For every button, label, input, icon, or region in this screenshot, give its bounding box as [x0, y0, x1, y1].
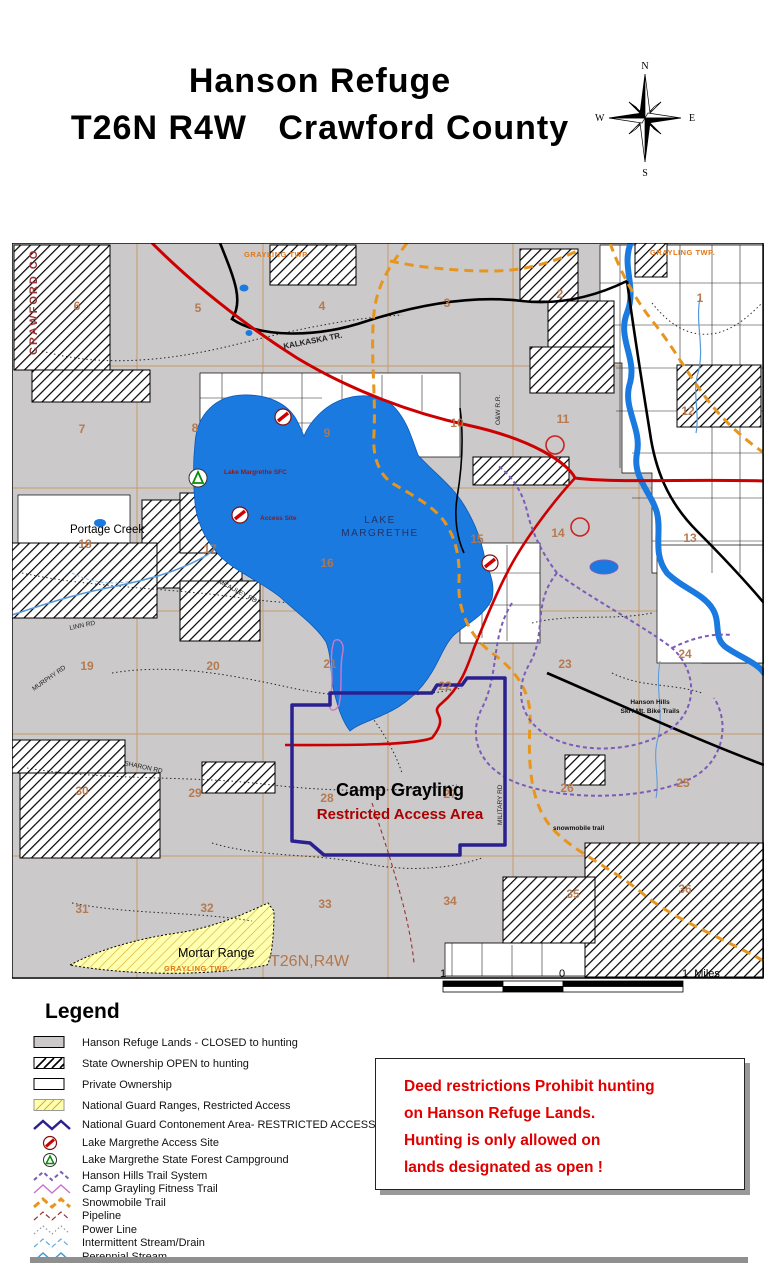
section-number: 12 — [681, 404, 695, 418]
legend-swatch-cell — [33, 1169, 73, 1183]
legend-item-label: Lake Margrethe State Forest Campground — [82, 1154, 289, 1166]
notice-line: lands designated as open ! — [376, 1154, 744, 1181]
section-number: 10 — [450, 416, 464, 430]
scale-label-left: 1 — [440, 968, 446, 980]
legend-swatch-cell — [33, 1135, 73, 1151]
section-number: 24 — [678, 647, 692, 661]
legend-line-sample — [33, 1196, 71, 1210]
legend-item-label: Private Ownership — [82, 1079, 172, 1091]
legend-item-label: National Guard Contonement Area- RESTRIC… — [82, 1119, 375, 1131]
legend-item: Pipeline — [33, 1210, 383, 1224]
legend-line-sample — [33, 1169, 71, 1183]
map-canvas: 6543217891011121817161514131920212223243… — [12, 243, 764, 979]
legend-line-sample — [33, 1182, 71, 1196]
lake-name-line1: LAKE — [364, 515, 396, 526]
legend-swatch-cell — [33, 1035, 73, 1050]
legend-swatch-yellow — [33, 1098, 67, 1113]
legend-swatch-cell — [33, 1152, 73, 1168]
section-number: 22 — [438, 679, 452, 693]
township-range-label: T26N,R4W — [270, 953, 350, 970]
legend-swatch-cell — [33, 1077, 73, 1092]
section-number: 14 — [551, 526, 565, 540]
legend-item-label: State Ownership OPEN to hunting — [82, 1058, 249, 1070]
legend-item: National Guard Ranges, Restricted Access — [33, 1095, 383, 1116]
legend-item: Power Line — [33, 1223, 383, 1237]
section-number: 31 — [75, 902, 89, 916]
legend-swatch-cell — [33, 1118, 73, 1132]
legend-panel: Legend Hanson Refuge Lands - CLOSED to h… — [33, 1000, 383, 1264]
legend-item: Hanson Hills Trail System — [33, 1169, 383, 1183]
legend-item-label: Lake Margrethe Access Site — [82, 1137, 219, 1149]
section-number: 30 — [75, 784, 89, 798]
section-number: 34 — [443, 894, 457, 908]
section-number: 2 — [557, 287, 564, 301]
scale-label-right: 1 Miles — [682, 968, 720, 980]
legend-item-label: National Guard Ranges, Restricted Access — [82, 1100, 291, 1112]
compass-n-label: N — [641, 61, 648, 72]
legend-items: Hanson Refuge Lands - CLOSED to huntingS… — [33, 1032, 383, 1264]
legend-item: State Ownership OPEN to hunting — [33, 1053, 383, 1074]
section-number: 13 — [683, 531, 697, 545]
portage-creek-label: Portage Creek — [70, 524, 144, 536]
section-number: 36 — [678, 882, 692, 896]
notice-line: Deed restrictions Prohibit hunting — [376, 1073, 744, 1100]
hanson-hills-label-1: Hanson Hills — [630, 699, 670, 706]
section-number: 4 — [319, 299, 326, 313]
section-number: 18 — [78, 537, 92, 551]
compass-s-label: S — [642, 168, 648, 179]
section-number: 19 — [80, 659, 94, 673]
legend-item: Camp Grayling Fitness Trail — [33, 1183, 383, 1197]
legend-item-label: Camp Grayling Fitness Trail — [82, 1183, 218, 1195]
legend-line-sample — [33, 1236, 71, 1250]
access-site-icon — [33, 1135, 67, 1151]
legend-line-sample — [33, 1118, 71, 1132]
section-number: 25 — [676, 776, 690, 790]
legend-swatch-cell — [33, 1196, 73, 1210]
legend-item: Lake Margrethe State Forest Campground — [33, 1152, 383, 1170]
scale-bar: 1 0 1 Miles — [430, 966, 760, 1000]
legend-swatch-cell — [33, 1209, 73, 1223]
map-title: Hanson Refuge T26N R4W Crawford County — [20, 62, 620, 148]
section-number: 3 — [444, 296, 451, 310]
campground-icon — [189, 469, 207, 487]
section-number: 28 — [320, 791, 334, 805]
legend-item-label: Hanson Hills Trail System — [82, 1170, 207, 1182]
legend-swatch-cell — [33, 1098, 73, 1113]
section-number: 8 — [192, 421, 199, 435]
legend-item: Hanson Refuge Lands - CLOSED to hunting — [33, 1032, 383, 1053]
legend-item-label: Power Line — [82, 1224, 137, 1236]
scale-label-zero: 0 — [559, 968, 565, 980]
hanson-hills-label-2: Ski / Mt. Bike Trails — [621, 708, 680, 715]
notice-line: Hunting is only allowed on — [376, 1127, 744, 1154]
legend-item-label: Snowmobile Trail — [82, 1197, 166, 1209]
compass-w-label: W — [595, 113, 605, 124]
section-number: 33 — [318, 897, 332, 911]
legend-swatch-cell — [33, 1223, 73, 1237]
scale-bar-segments — [443, 981, 683, 992]
section-number: 16 — [320, 556, 334, 570]
legend-item: National Guard Contonement Area- RESTRIC… — [33, 1116, 383, 1134]
lake-sfc-label: Lake Margrethe SFC — [224, 469, 287, 476]
section-number: 20 — [206, 659, 220, 673]
legend-item-label: Hanson Refuge Lands - CLOSED to hunting — [82, 1037, 298, 1049]
camp-grayling-label: Camp Grayling — [336, 780, 464, 800]
military-rd-label: MILITARY RD — [497, 784, 504, 825]
section-number: 17 — [203, 542, 217, 556]
legend-item-label: Intermittent Stream/Drain — [82, 1237, 205, 1249]
section-number: 35 — [566, 887, 580, 901]
section-number: 5 — [195, 301, 202, 315]
section-number: 15 — [470, 532, 484, 546]
lake-name-line2: MARGRETHE — [341, 528, 418, 539]
section-number: 11 — [557, 412, 570, 426]
compass-star — [609, 74, 681, 162]
legend-swatch-cell — [33, 1236, 73, 1250]
snowmobile-trail-label: snowmobile trail — [553, 825, 604, 832]
section-number: 29 — [188, 786, 202, 800]
township-label-top: GRAYLING TWP. — [244, 250, 309, 259]
compass-e-label: E — [689, 113, 695, 124]
section-number: 21 — [323, 657, 337, 671]
township-label-bottom: GRAYLING TWP. — [164, 964, 229, 973]
section-number: 6 — [74, 299, 81, 313]
mortar-range-label: Mortar Range — [178, 946, 254, 960]
county-label: CRAWFORD CO — [28, 249, 40, 355]
restricted-access-label: Restricted Access Area — [317, 806, 484, 823]
legend-item: Snowmobile Trail — [33, 1196, 383, 1210]
compass-rose: N S E W — [595, 60, 695, 180]
legend-heading: Legend — [45, 1000, 383, 1024]
legend-line-sample — [33, 1223, 71, 1237]
campground-icon — [33, 1152, 67, 1168]
section-number: 32 — [200, 901, 214, 915]
legend-swatch-cell — [33, 1182, 73, 1196]
legend-item: Intermittent Stream/Drain — [33, 1237, 383, 1251]
section-number: 23 — [558, 657, 572, 671]
legend-swatch-cell — [33, 1056, 73, 1071]
legend-line-sample — [33, 1209, 71, 1223]
section-number: 7 — [79, 422, 86, 436]
title-line-1: Hanson Refuge — [20, 62, 620, 101]
legend-swatch-hatched — [33, 1056, 67, 1071]
section-number: 9 — [324, 426, 331, 440]
notice-line: on Hanson Refuge Lands. — [376, 1100, 744, 1127]
railroad-label: O&W R.R. — [495, 394, 502, 425]
section-number: 26 — [560, 781, 574, 795]
legend-swatch — [33, 1077, 67, 1092]
page-shadow — [30, 1257, 748, 1263]
legend-swatch — [33, 1035, 67, 1050]
access-site-label: Access Site — [260, 515, 297, 522]
section-number: 1 — [697, 291, 704, 305]
township-label-topright: GRAYLING TWP. — [650, 248, 715, 257]
title-line-2: T26N R4W Crawford County — [20, 109, 620, 148]
legend-item-label: Pipeline — [82, 1210, 121, 1222]
hunting-notice-box: Deed restrictions Prohibit hunting on Ha… — [375, 1058, 745, 1190]
legend-item: Private Ownership — [33, 1074, 383, 1095]
legend-item: Lake Margrethe Access Site — [33, 1134, 383, 1152]
